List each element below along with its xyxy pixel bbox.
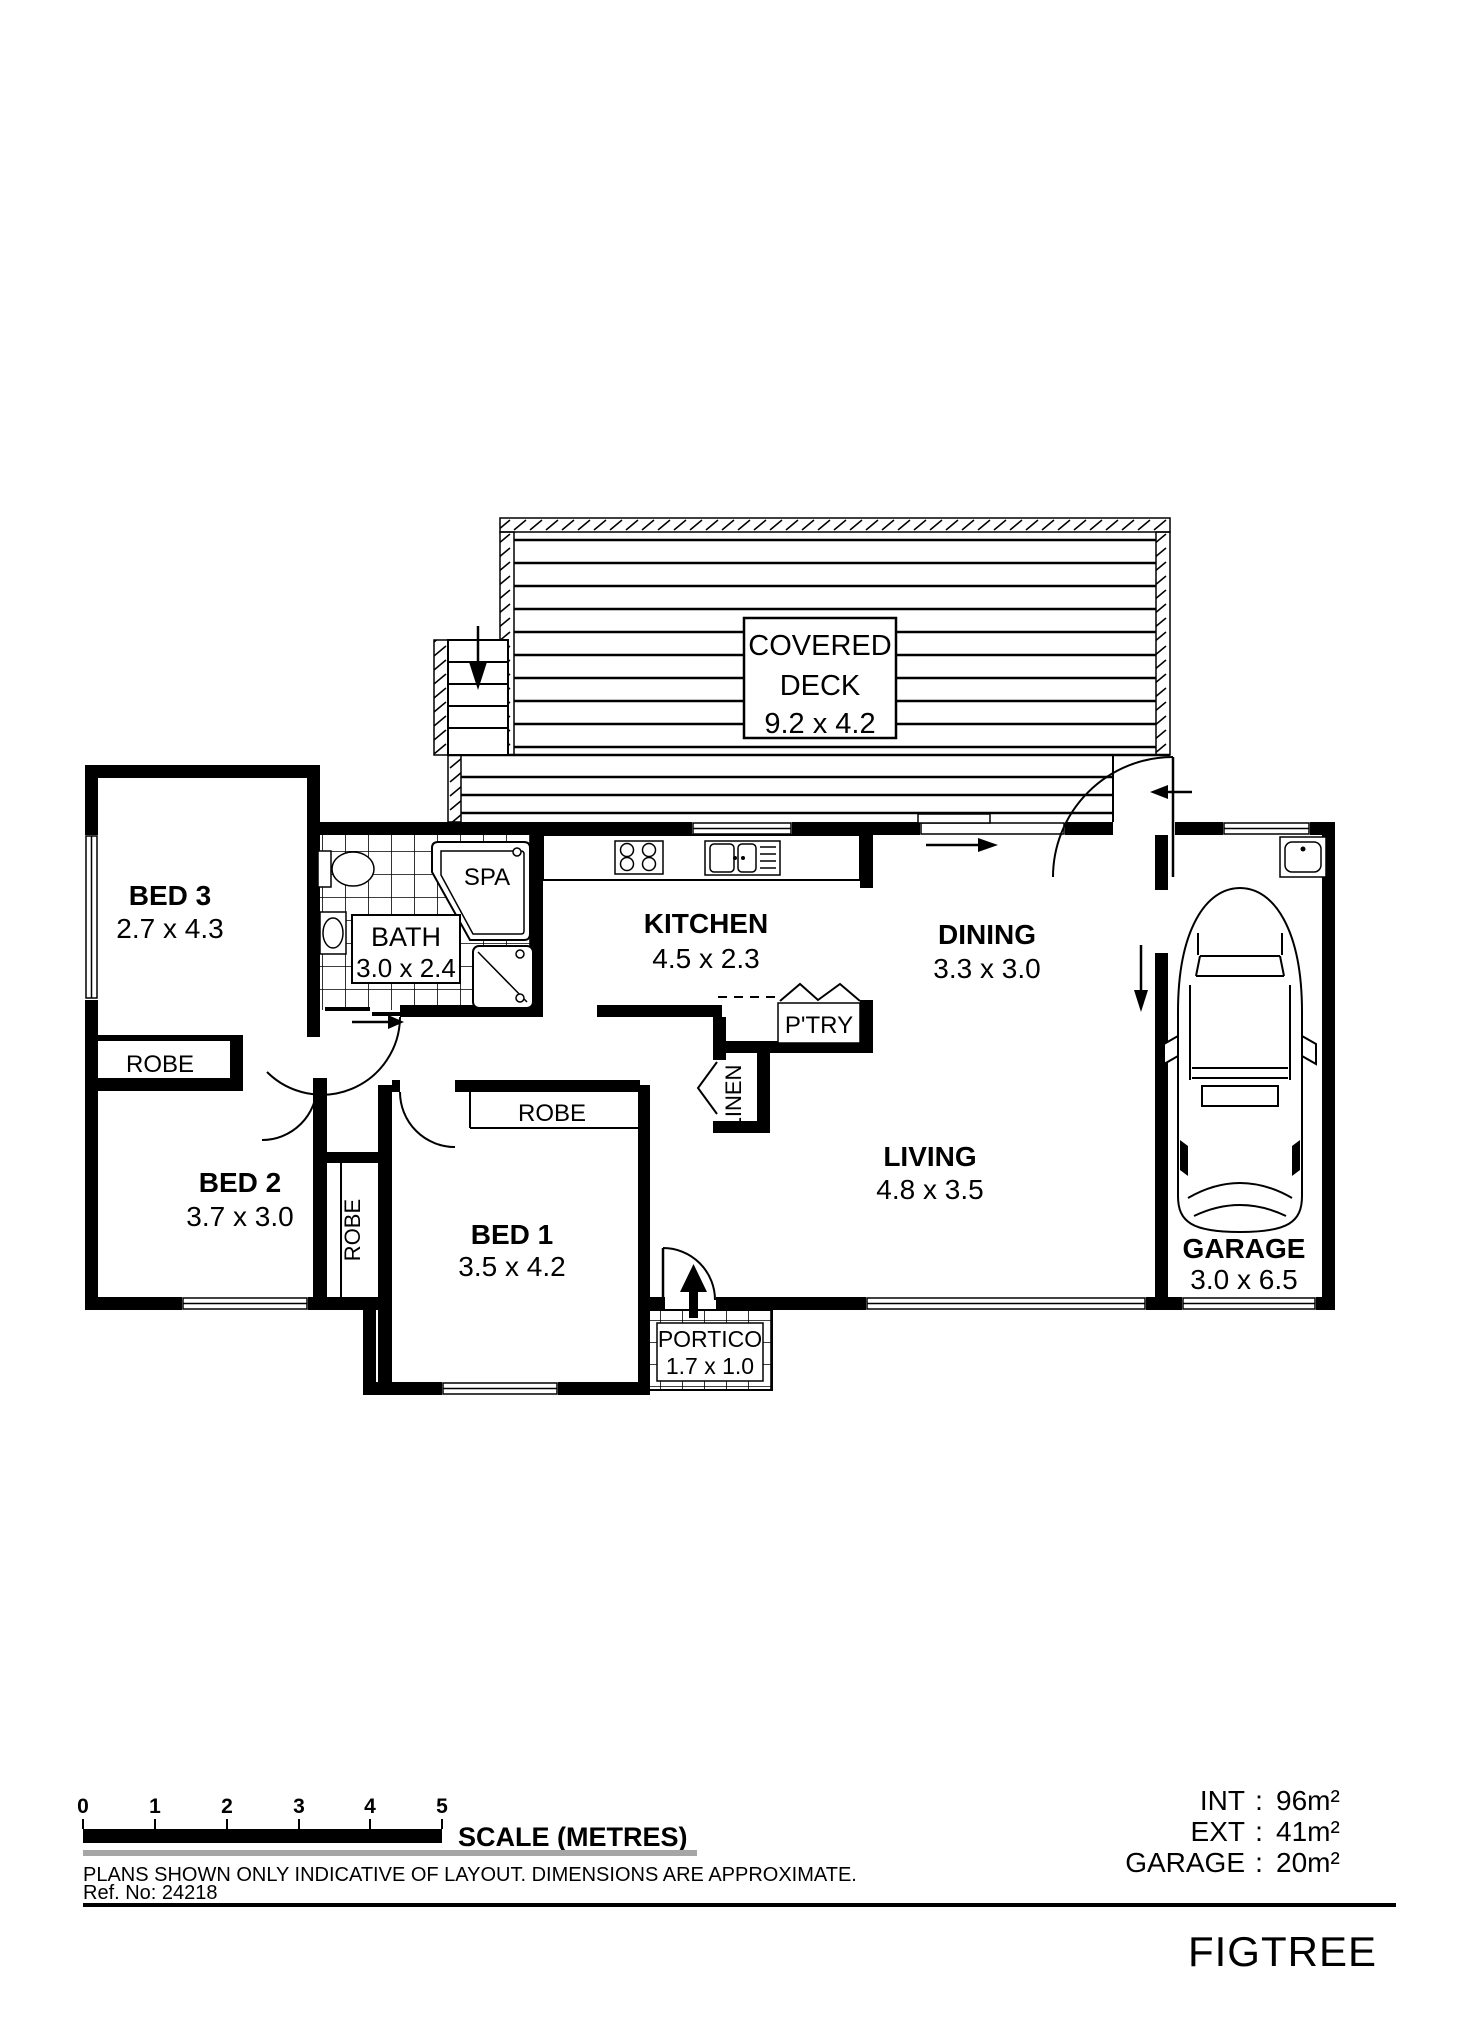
pantry-bifold-door: [780, 984, 860, 1001]
toilet-icon: [318, 851, 331, 887]
pantry-label: P'TRY: [785, 1012, 853, 1039]
kitchen-label: KITCHEN: [644, 908, 768, 939]
robe-hall-label: ROBE: [340, 1199, 365, 1261]
robe-bed1-label: ROBE: [518, 1100, 586, 1127]
bed1-label: BED 1: [471, 1219, 553, 1250]
linen-bifold-door: [698, 1062, 717, 1114]
ext-value: 41m²: [1276, 1816, 1340, 1847]
bed2-window: [183, 1298, 307, 1309]
robe-bed3-label: ROBE: [126, 1051, 194, 1078]
bed2-dims: 3.7 x 3.0: [186, 1201, 293, 1232]
bed1-door-arc: [400, 1092, 455, 1147]
ext-colon: :: [1255, 1816, 1263, 1847]
linen-label: LINEN: [721, 1065, 746, 1130]
ref-number: Ref. No: 24218: [83, 1882, 218, 1904]
kitchen-dims: 4.5 x 2.3: [652, 943, 759, 974]
living-label: LIVING: [883, 1141, 976, 1172]
garage-area-label: GARAGE: [1125, 1847, 1245, 1878]
scale-label: SCALE (METRES): [458, 1822, 688, 1852]
bed2-label: BED 2: [199, 1167, 281, 1198]
ext-label: EXT: [1191, 1816, 1245, 1847]
sink-icon: [705, 841, 780, 875]
garage-label: GARAGE: [1183, 1233, 1306, 1264]
bath-door-arc: [267, 1017, 400, 1095]
scale-tick-5: 5: [436, 1795, 448, 1818]
garage-dims: 3.0 x 6.5: [1190, 1264, 1297, 1295]
spa-label: SPA: [464, 864, 510, 891]
bath-label-box: BATH 3.0 x 2.4: [352, 915, 460, 983]
int-label: INT: [1200, 1785, 1245, 1816]
deck-dims: 9.2 x 4.2: [764, 708, 875, 740]
scale-tick-0: 0: [77, 1795, 89, 1818]
car-icon: [1164, 888, 1316, 1232]
scale-tick-4: 4: [364, 1795, 376, 1818]
dining-dims: 3.3 x 3.0: [933, 953, 1040, 984]
room-labels: BED 3 2.7 x 4.3 BED 2 3.7 x 3.0 BED 1 3.…: [116, 880, 1305, 1295]
deck-label-box: COVERED DECK 9.2 x 4.2: [744, 618, 896, 740]
shower-icon: [473, 946, 533, 1008]
bed1-dims: 3.5 x 4.2: [458, 1251, 565, 1282]
footer-rule: [83, 1903, 1396, 1907]
garage-area-value: 20m²: [1276, 1847, 1340, 1878]
portico-dims: 1.7 x 1.0: [666, 1353, 754, 1379]
area-summary: INT : 96m² EXT : 41m² GARAGE : 20m²: [1125, 1785, 1340, 1878]
int-colon: :: [1255, 1785, 1263, 1816]
garage-area-colon: :: [1255, 1847, 1263, 1878]
garage-door-panel: [1183, 1298, 1315, 1309]
portico-label: PORTICO: [658, 1326, 762, 1352]
bath-door-threshold2: [372, 1012, 420, 1016]
living-dims: 4.8 x 3.5: [876, 1174, 983, 1205]
deck-edge-top: [500, 518, 1170, 532]
linen-closet: LINEN: [698, 1062, 746, 1129]
brand-title: FIGTREE: [1188, 1928, 1377, 1975]
garage-window: [1224, 823, 1309, 834]
windows: [86, 814, 1315, 1394]
covered-deck: COVERED DECK 9.2 x 4.2: [434, 518, 1170, 822]
deck-label-line1: COVERED: [748, 630, 891, 662]
floorplan-page: COVERED DECK 9.2 x 4.2: [0, 0, 1458, 2042]
bed3-label: BED 3: [129, 880, 211, 911]
scale-divider: [83, 1850, 697, 1856]
pantry-closet: P'TRY: [778, 984, 860, 1043]
scale-tick-3: 3: [293, 1795, 305, 1818]
portico-entry: PORTICO 1.7 x 1.0: [657, 1264, 763, 1381]
scale-bar: 0 1 2 3 4 5 SCALE (METRES): [77, 1795, 697, 1856]
bath-door-threshold: [325, 1007, 370, 1011]
entry-arrow: [689, 1292, 698, 1318]
kitchen-window: [693, 823, 791, 834]
bed1-window: [443, 1383, 557, 1394]
bed3-dims: 2.7 x 4.3: [116, 913, 223, 944]
bath-label: BATH: [371, 922, 441, 952]
sliding-door: [918, 814, 1064, 852]
kitchen-counter: [543, 835, 860, 880]
bed3-window: [86, 836, 97, 998]
scale-tick-2: 2: [221, 1795, 233, 1818]
dining-label: DINING: [938, 919, 1036, 950]
deck-edge-right: [1156, 532, 1170, 755]
garage-content: [1164, 837, 1326, 1232]
living-window: [867, 1298, 1145, 1309]
deck-label-line2: DECK: [780, 670, 861, 702]
deck-steps: [434, 626, 508, 755]
floorplan-drawing: COVERED DECK 9.2 x 4.2: [0, 0, 1458, 2042]
int-value: 96m²: [1276, 1785, 1340, 1816]
bath-dims: 3.0 x 2.4: [356, 953, 456, 983]
laundry-tub-icon: [1280, 837, 1326, 877]
scale-tick-1: 1: [149, 1795, 161, 1818]
cooktop-icon: [615, 841, 663, 874]
deck-edge-lower-left: [448, 755, 461, 822]
